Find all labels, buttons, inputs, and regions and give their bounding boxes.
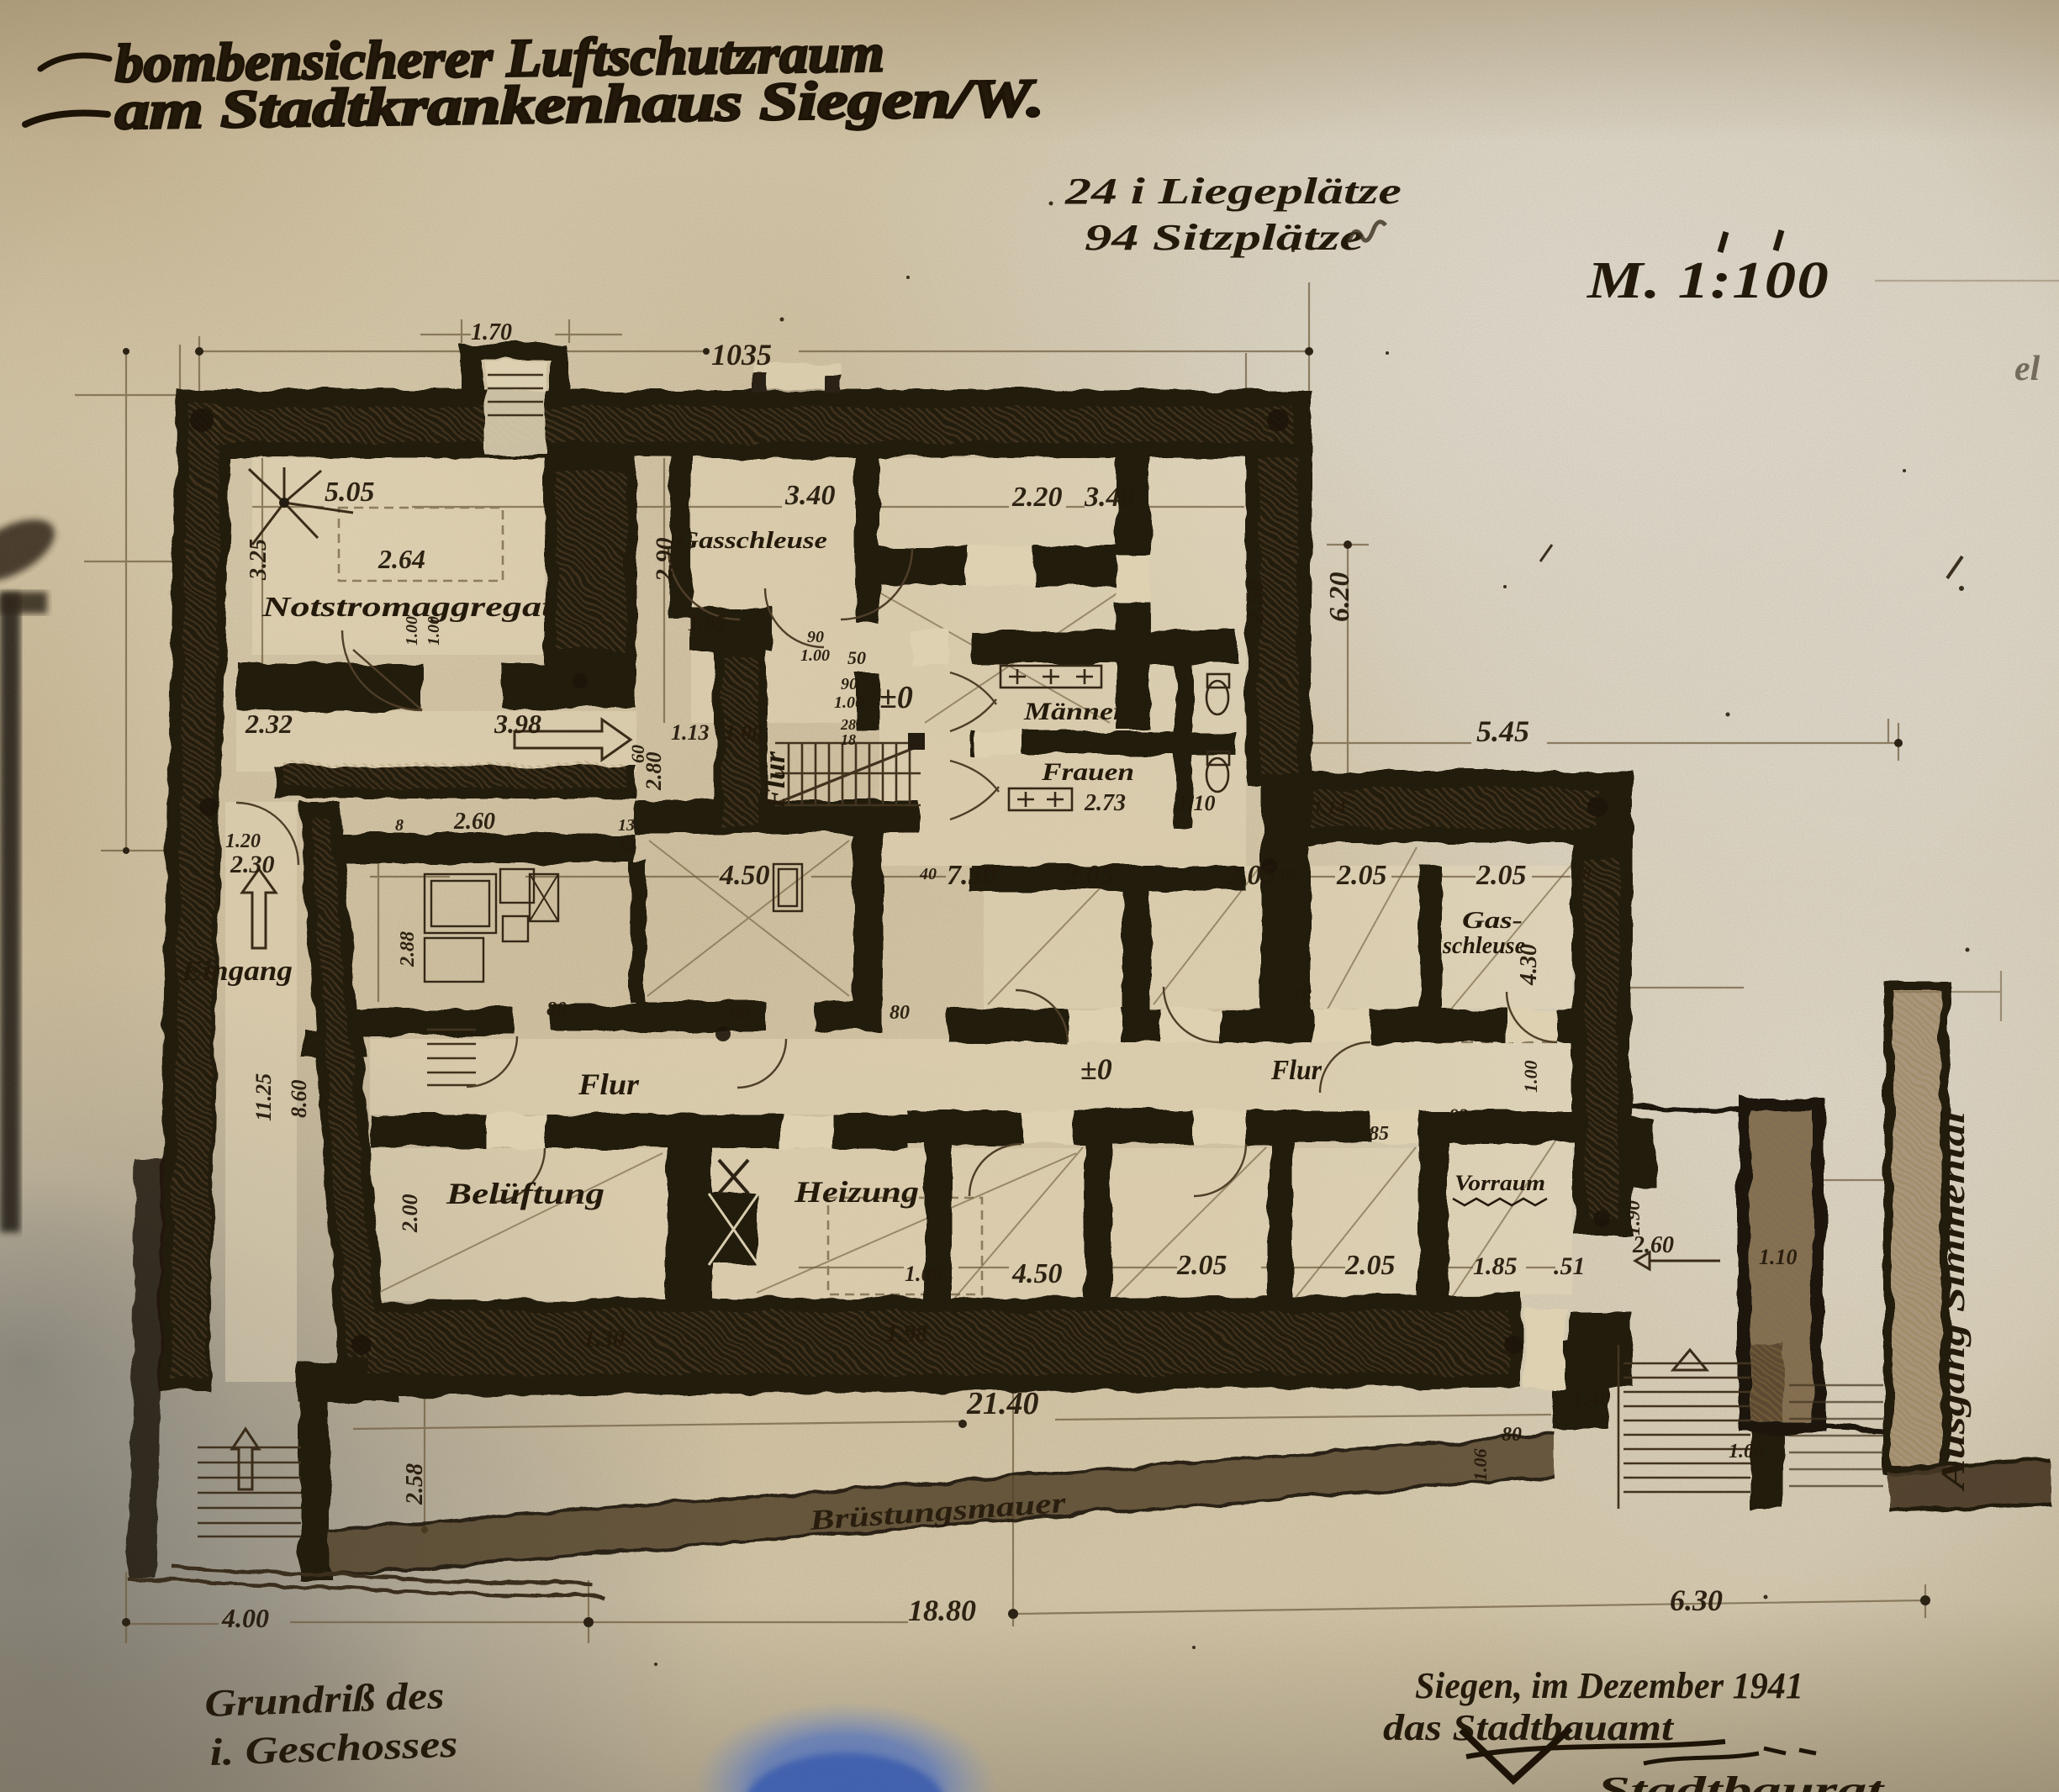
svg-text:13: 13 [618, 816, 635, 835]
svg-text:90: 90 [841, 675, 858, 693]
svg-text:Flur: Flur [578, 1067, 640, 1101]
svg-text:2.50: 2.50 [1241, 580, 1269, 625]
svg-text:80: 80 [890, 1002, 910, 1024]
svg-text:1.10: 1.10 [1177, 791, 1216, 815]
svg-text:8.60: 8.60 [287, 1080, 311, 1119]
svg-text:10: 10 [1574, 865, 1591, 883]
svg-text:Heizung: Heizung [794, 1175, 919, 1209]
svg-text:Flur: Flur [1270, 1055, 1323, 1086]
svg-text:4.00: 4.00 [221, 1603, 269, 1633]
svg-text:Eingang: Eingang [181, 956, 293, 987]
svg-text:2.20: 2.20 [1011, 482, 1063, 513]
svg-text:2.64: 2.64 [377, 544, 425, 574]
svg-text:i. Geschosses: i. Geschosses [209, 1722, 459, 1774]
svg-text:2.30: 2.30 [230, 851, 275, 878]
svg-text:1.10: 1.10 [1759, 1245, 1798, 1269]
svg-text:24 i Liegeplätze: 24 i Liegeplätze [1064, 171, 1402, 212]
svg-text:78: 78 [1291, 985, 1312, 1007]
svg-text:14: 14 [618, 838, 635, 856]
svg-text:28: 28 [840, 716, 856, 733]
svg-text:1.40: 1.40 [1572, 1386, 1611, 1410]
svg-text:18.80: 18.80 [908, 1594, 976, 1627]
svg-text:2.90: 2.90 [651, 538, 678, 583]
svg-text:Belüftung: Belüftung [446, 1177, 605, 1210]
svg-text:1.00: 1.00 [1520, 1061, 1541, 1094]
svg-text:4.50: 4.50 [719, 860, 770, 891]
svg-text:11.25: 11.25 [251, 1073, 276, 1121]
svg-text:±0: ±0 [879, 680, 913, 715]
svg-text:3.25: 3.25 [245, 539, 272, 581]
svg-text:3.40: 3.40 [784, 480, 836, 511]
svg-text:2.05: 2.05 [1064, 860, 1115, 891]
svg-text:6.20: 6.20 [1324, 572, 1355, 623]
svg-text:5.45: 5.45 [1476, 714, 1529, 748]
svg-text:8: 8 [395, 816, 404, 835]
svg-text:2.32: 2.32 [245, 709, 293, 739]
svg-text:1.98: 1.98 [886, 1321, 927, 1347]
svg-text:6.30: 6.30 [1670, 1584, 1723, 1617]
svg-text:80: 80 [730, 1002, 750, 1024]
svg-text:80: 80 [1502, 1424, 1522, 1446]
svg-text:1.20: 1.20 [225, 830, 261, 852]
svg-text:80: 80 [546, 999, 567, 1020]
svg-text:1.30: 1.30 [583, 1326, 625, 1352]
svg-text:1.05: 1.05 [688, 611, 726, 635]
svg-text:M. 1:100: M. 1:100 [1586, 252, 1829, 309]
svg-text:50: 50 [847, 647, 866, 668]
svg-text:1.00: 1.00 [403, 616, 421, 646]
svg-text:90: 90 [807, 628, 824, 646]
svg-text:1.00: 1.00 [1729, 1441, 1764, 1463]
svg-text:1.85: 1.85 [1473, 1252, 1518, 1280]
svg-text:3.40: 3.40 [1084, 482, 1135, 513]
svg-text:1.00: 1.00 [834, 693, 863, 712]
svg-text:2.05: 2.05 [1344, 1250, 1396, 1281]
svg-text:1.13: 1.13 [671, 720, 710, 745]
svg-text:2.73: 2.73 [1084, 790, 1126, 816]
svg-text:2.05: 2.05 [1336, 860, 1387, 891]
svg-text:schleuse: schleuse [1442, 933, 1525, 959]
svg-text:92: 92 [1449, 1104, 1468, 1125]
svg-text:2.60: 2.60 [1632, 1232, 1674, 1258]
svg-text:2.88: 2.88 [397, 931, 419, 967]
svg-text:1.06: 1.06 [1470, 1449, 1491, 1482]
svg-text:2.05: 2.05 [1476, 860, 1527, 891]
svg-text:2.58: 2.58 [402, 1463, 428, 1505]
svg-text:40: 40 [919, 865, 937, 883]
svg-text:85: 85 [1369, 1123, 1389, 1145]
svg-text:das Stadtbauamt: das Stadtbauamt [1383, 1707, 1675, 1748]
svg-text:2.60: 2.60 [453, 809, 495, 835]
svg-text:el: el [2014, 350, 2041, 388]
svg-text:Männer: Männer [1023, 698, 1126, 725]
svg-text:18: 18 [841, 731, 856, 748]
svg-text:1.00: 1.00 [425, 616, 443, 646]
svg-text:7.50: 7.50 [947, 860, 997, 891]
svg-text:3.98: 3.98 [494, 709, 541, 739]
svg-text:10: 10 [1278, 865, 1295, 883]
svg-text:Ausgang Simmental: Ausgang Simmental [1934, 1110, 1972, 1493]
svg-text:Vorraum: Vorraum [1454, 1171, 1545, 1195]
svg-text:5.05: 5.05 [325, 477, 375, 508]
svg-text:Siegen, im Dezember 1941: Siegen, im Dezember 1941 [1415, 1665, 1803, 1706]
svg-text:1.00: 1.00 [800, 646, 830, 665]
svg-text:94 Sitzplätze: 94 Sitzplätze [1085, 217, 1364, 258]
svg-text:1.14: 1.14 [1313, 797, 1346, 818]
svg-text:4.30: 4.30 [1516, 944, 1542, 986]
svg-text:2.05: 2.05 [1176, 1250, 1227, 1281]
svg-text:.51: .51 [1554, 1252, 1586, 1280]
svg-text:Grundriß des: Grundriß des [204, 1673, 446, 1725]
svg-text:1035: 1035 [711, 338, 772, 372]
svg-text:1.90: 1.90 [1623, 1200, 1645, 1236]
svg-text:1.00: 1.00 [905, 1262, 943, 1286]
svg-text:Gasschleuse: Gasschleuse [678, 528, 827, 554]
svg-text:Frauen: Frauen [1041, 758, 1134, 786]
svg-text:±0: ±0 [1080, 1052, 1112, 1086]
svg-text:21.40: 21.40 [966, 1386, 1039, 1421]
svg-text:60: 60 [627, 745, 648, 763]
svg-text:Gas-: Gas- [1462, 908, 1523, 934]
svg-text:Flur: Flur [758, 751, 791, 809]
svg-text:2.05: 2.05 [1225, 860, 1276, 891]
svg-text:4.50: 4.50 [1011, 1258, 1063, 1289]
svg-text:Stadtbaurat: Stadtbaurat [1597, 1769, 1886, 1792]
svg-text:1.70: 1.70 [471, 319, 512, 345]
svg-text:1.00: 1.00 [725, 720, 763, 745]
svg-text:2.00: 2.00 [398, 1194, 422, 1234]
